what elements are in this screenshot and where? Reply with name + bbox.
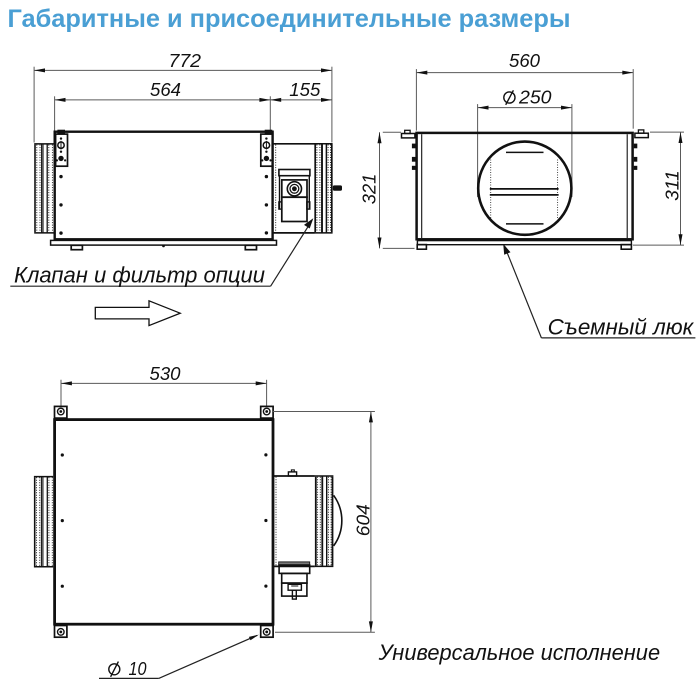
svg-text:Габаритные и присоединительные: Габаритные и присоединительные размеры <box>8 5 571 33</box>
svg-text:530: 530 <box>150 363 182 384</box>
svg-text:Клапан и фильтр опции: Клапан и фильтр опции <box>14 263 265 288</box>
svg-text:564: 564 <box>150 79 181 100</box>
svg-text:311: 311 <box>662 170 683 201</box>
svg-text:Съемный люк: Съемный люк <box>548 314 695 339</box>
svg-text:250: 250 <box>518 86 552 107</box>
svg-text:321: 321 <box>358 174 379 205</box>
svg-text:155: 155 <box>289 79 321 100</box>
svg-text:10: 10 <box>129 658 148 679</box>
svg-text:772: 772 <box>169 50 202 71</box>
svg-text:604: 604 <box>352 504 373 536</box>
svg-text:560: 560 <box>509 50 541 71</box>
svg-text:Универсальное исполнение: Универсальное исполнение <box>378 640 660 665</box>
